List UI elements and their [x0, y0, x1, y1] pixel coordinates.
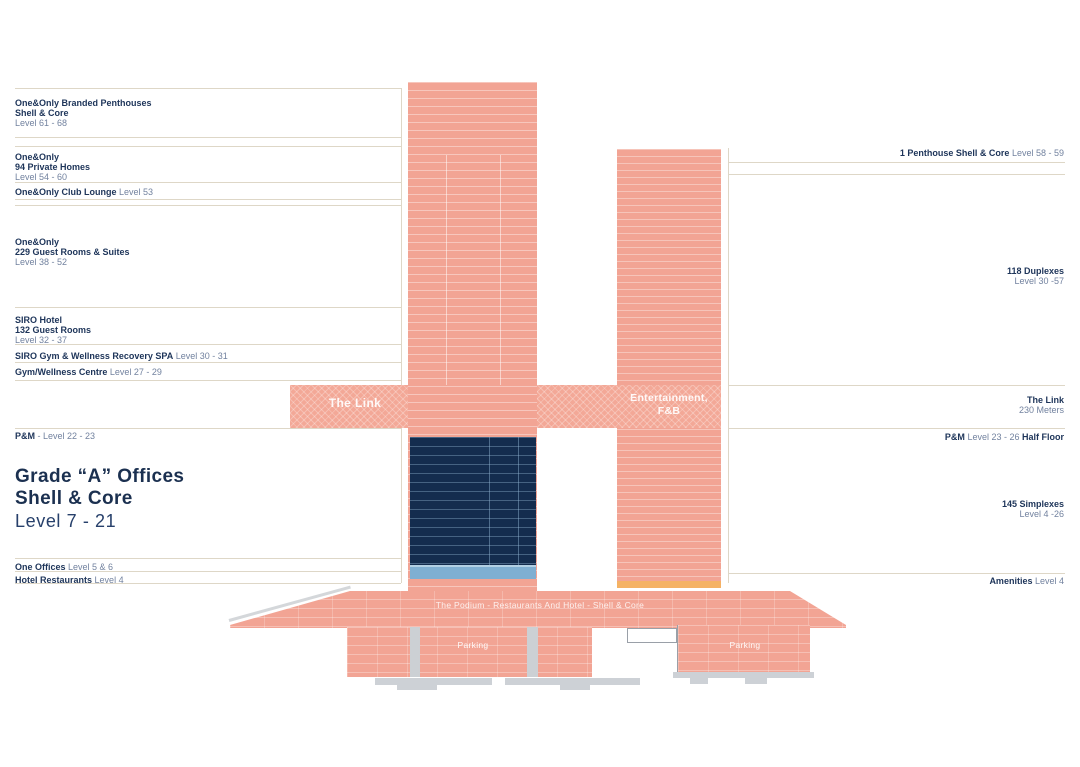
divider-line: [15, 307, 401, 308]
label-guest-rooms: One&Only 229 Guest Rooms & Suites Level …: [15, 237, 395, 267]
foundation-step: [690, 678, 708, 684]
tower-facade-line: [500, 155, 501, 385]
divider-line: [15, 380, 401, 381]
divider-line: [728, 162, 1065, 163]
label-penthouses: One&Only Branded Penthouses Shell & Core…: [15, 98, 395, 128]
parking-structure-left: [347, 627, 592, 677]
label-gym-wellness: Gym/Wellness Centre Level 27 - 29: [15, 367, 395, 377]
divider-line: [728, 573, 1065, 574]
label-grade-a-offices: Grade “A” Offices Shell & Core Level 7 -…: [15, 466, 184, 532]
parking-core: [410, 627, 420, 677]
foundation-strip: [505, 678, 640, 685]
label-the-link-band: The Link: [300, 396, 410, 410]
label-private-homes: One&Only 94 Private Homes Level 54 - 60: [15, 152, 395, 182]
label-club-lounge: One&Only Club Lounge Level 53: [15, 187, 395, 197]
label-penthouse-right: 1 Penthouse Shell & Core Level 58 - 59: [764, 148, 1064, 158]
label-entertainment-fb: Entertainment, F&B: [617, 392, 721, 417]
building-section-diagram: One&Only Branded Penthouses Shell & Core…: [0, 0, 1080, 767]
amenities-band: [617, 581, 721, 588]
label-pm-left: P&M - Level 22 - 23: [15, 431, 395, 441]
divider-line: [15, 137, 401, 138]
one-offices-band: [410, 565, 536, 579]
label-simplexes: 145 Simplexes Level 4 -26: [764, 499, 1064, 519]
divider-line: [15, 428, 401, 429]
grade-a-offices-block: [410, 437, 536, 565]
parking-core: [527, 627, 538, 677]
divider-line: [728, 428, 1065, 429]
foundation-strip: [375, 678, 492, 685]
divider-line: [15, 146, 401, 147]
foundation-step: [397, 685, 437, 690]
label-siro-hotel: SIRO Hotel 132 Guest Rooms Level 32 - 37: [15, 315, 395, 345]
label-hotel-restaurants: Hotel Restaurants Level 4: [15, 575, 395, 585]
tower-facade-line: [446, 155, 447, 385]
parking-ramp-box: [627, 628, 677, 643]
divider-line: [15, 88, 401, 89]
label-amenities: Amenities Level 4: [764, 576, 1064, 586]
label-siro-spa: SIRO Gym & Wellness Recovery SPA Level 3…: [15, 351, 395, 361]
divider-line: [15, 362, 401, 363]
foundation-step: [560, 685, 590, 690]
label-duplexes: 118 Duplexes Level 30 -57: [764, 266, 1064, 286]
divider-line: [15, 558, 401, 559]
right-connector-line: [728, 148, 729, 583]
foundation-step: [745, 678, 767, 684]
left-connector-line: [401, 88, 402, 583]
label-link-right: The Link 230 Meters: [764, 395, 1064, 415]
divider-line: [728, 385, 1065, 386]
label-one-offices: One Offices Level 5 & 6: [15, 562, 395, 572]
divider-line: [15, 182, 401, 183]
label-parking-left: Parking: [433, 640, 513, 650]
divider-line: [15, 205, 401, 206]
tower-two: [617, 149, 721, 581]
divider-line: [15, 199, 401, 200]
label-parking-right: Parking: [710, 640, 780, 650]
label-pm-right: P&M Level 23 - 26 Half Floor: [764, 432, 1064, 442]
divider-line: [728, 174, 1065, 175]
label-podium: The Podium - Restaurants And Hotel - She…: [350, 600, 730, 610]
